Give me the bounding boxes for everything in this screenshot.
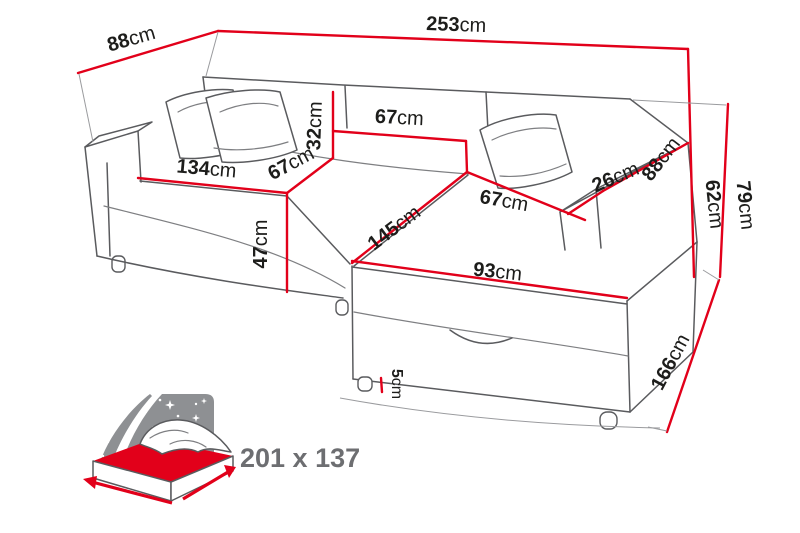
star-dot bbox=[107, 441, 109, 443]
left-armrest-inner-front-edge bbox=[107, 163, 110, 256]
dim-total-height: 79cm bbox=[731, 180, 758, 231]
dim-armrest-height: 62cm bbox=[700, 179, 727, 230]
dim-leg-height: 5cm bbox=[388, 369, 405, 399]
star-dot bbox=[102, 455, 104, 457]
dim-right-armrest-depth: 88cm bbox=[638, 133, 685, 185]
dim-left-seat-width: 134cm bbox=[176, 155, 238, 182]
sofa-dimension-diagram: 88cm 253cm 79cm 62cm 88cm 26cm 166cm 32c… bbox=[0, 0, 800, 533]
star-dot bbox=[119, 421, 121, 423]
seat-base-seam bbox=[104, 206, 345, 288]
right-pillow bbox=[480, 114, 572, 188]
left-armrest-leg bbox=[112, 256, 125, 272]
dim-seat-height: 47cm bbox=[250, 220, 272, 269]
guide-line-left bbox=[79, 74, 93, 142]
left-armrest-inner-edge bbox=[138, 131, 141, 182]
seat-to-chaise-edge bbox=[287, 196, 350, 264]
left-armrest-outer-edge bbox=[85, 147, 97, 256]
dim-chaise-front-width: 93cm bbox=[472, 259, 523, 286]
left-armrest-top bbox=[85, 122, 152, 147]
seat-front-leg bbox=[336, 300, 348, 315]
dim-total-width: 253cm bbox=[426, 13, 487, 37]
dim-chaise-depth: 145cm bbox=[364, 201, 425, 255]
backrest-right-corner-edge bbox=[630, 99, 688, 143]
line-backrest-cushion-width bbox=[333, 131, 466, 141]
dim-chaise-length: 166cm bbox=[647, 331, 695, 394]
sleeping-area-icon: 201 x 137 bbox=[83, 394, 360, 503]
chaise-left-leg bbox=[358, 377, 372, 391]
guide-line-back bbox=[206, 32, 218, 76]
right-armrest-front-right-edge bbox=[596, 189, 601, 248]
guide-line-top-right bbox=[633, 100, 726, 105]
bed-mattress-icon bbox=[83, 420, 236, 503]
dim-right-seat-width: 67cm bbox=[478, 186, 530, 216]
line-connector bbox=[466, 141, 467, 172]
line-armrest-height bbox=[688, 49, 694, 277]
sleeping-area-label: 201 x 137 bbox=[240, 443, 360, 473]
dim-backrest-cushion-width: 67cm bbox=[374, 106, 424, 131]
chaise-front-left-edge bbox=[352, 266, 353, 379]
backrest-seam-left bbox=[345, 86, 347, 128]
right-armrest-front-left-edge bbox=[560, 212, 565, 250]
guide-line-bottom-right bbox=[703, 270, 719, 280]
seat-front-edge bbox=[140, 181, 287, 196]
drawer-seam bbox=[354, 312, 628, 356]
diagram-canvas: 88cm 253cm 79cm 62cm 88cm 26cm 166cm 32c… bbox=[0, 0, 800, 533]
seat-base-bottom-edge bbox=[97, 256, 343, 298]
chaise-right-top-edge bbox=[627, 242, 697, 301]
star-dot bbox=[159, 399, 162, 402]
dimension-labels: 88cm 253cm 79cm 62cm 88cm 26cm 166cm 32c… bbox=[105, 13, 759, 399]
line-leg-height bbox=[381, 378, 382, 392]
left-pillow-front bbox=[206, 90, 297, 163]
star-dot bbox=[145, 411, 147, 413]
dim-right-armrest-width: 26cm bbox=[589, 158, 643, 197]
star-dot bbox=[195, 403, 197, 405]
width-arrow-head bbox=[83, 476, 97, 489]
star-dot bbox=[177, 415, 180, 418]
